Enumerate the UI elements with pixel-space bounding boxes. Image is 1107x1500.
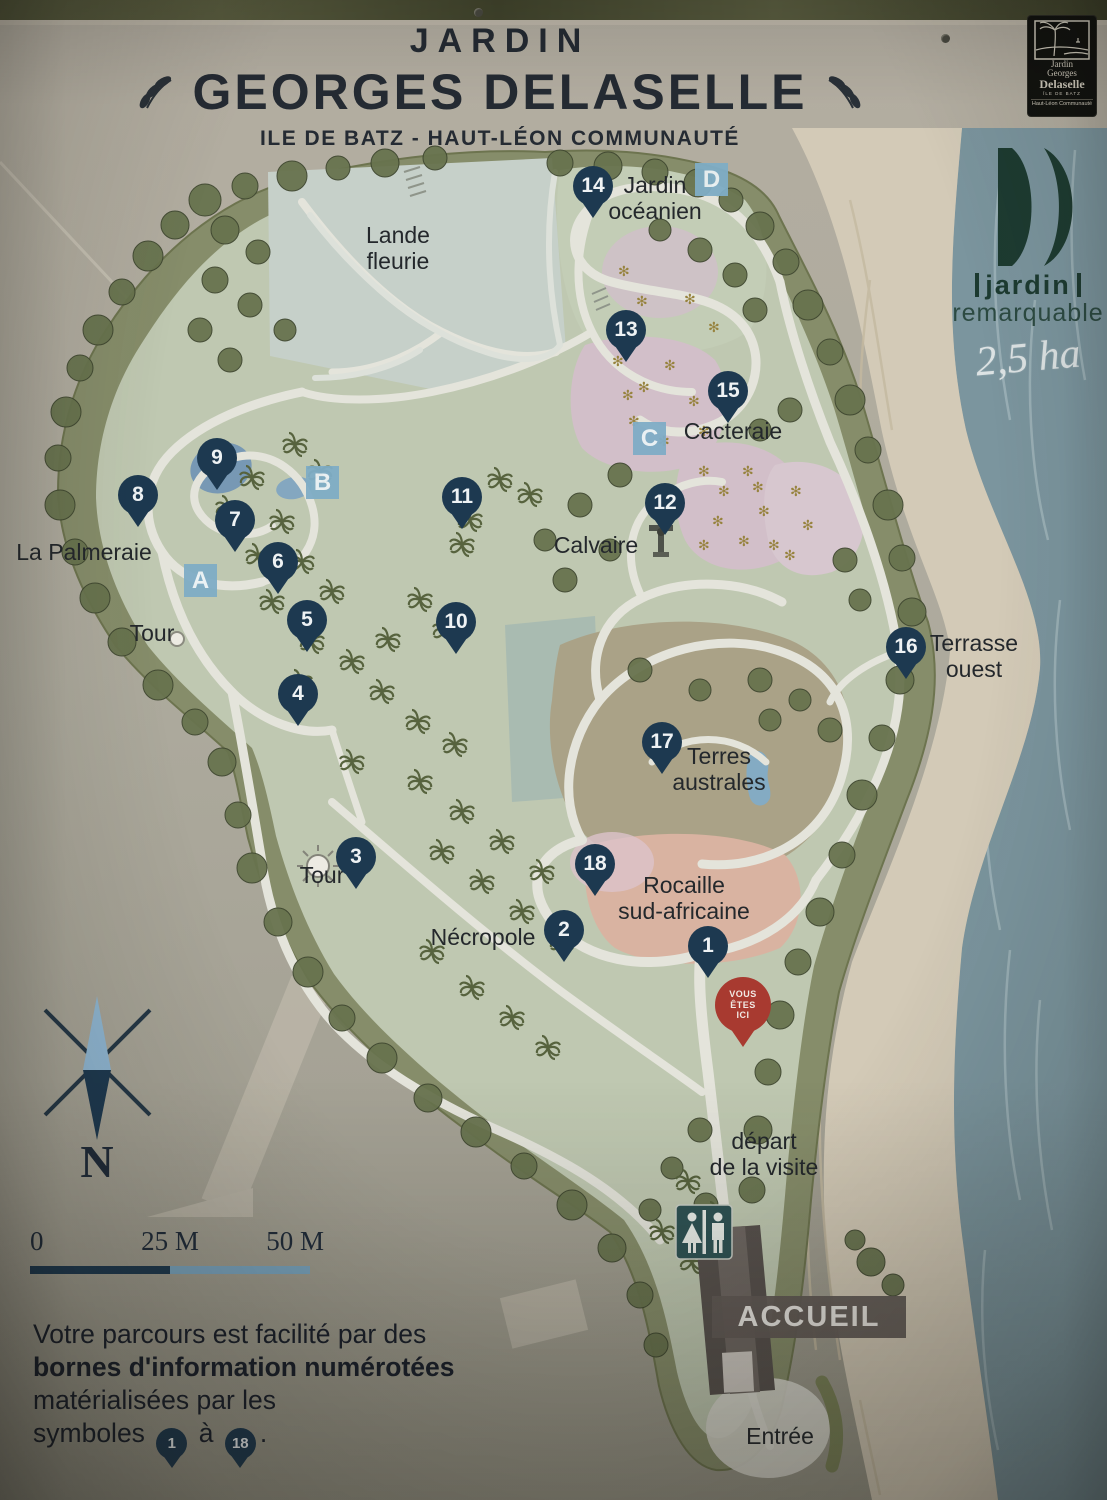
svg-text:✻: ✻ [768,537,780,553]
subtitle: ILE DE BATZ - HAUT-LÉON COMMUNAUTÉ [0,127,1000,151]
toilets-icon [676,1205,732,1259]
scale-bar-dark [30,1266,170,1274]
leaf-ornament-left [131,72,175,112]
map-marker-13: 13 [606,310,646,350]
leaf-ornament-right [825,72,869,112]
scale-start: 0 [30,1226,44,1257]
compass-rose [45,996,150,1140]
you-are-here-text: VOUS [729,989,757,1000]
badge-leaf-shapes [968,148,1088,266]
map-marker-2: 2 [544,910,584,950]
wooden-frame-top [0,0,1107,20]
map-marker-4: 4 [278,674,318,714]
svg-text:✻: ✻ [622,387,634,403]
svg-text:✻: ✻ [752,479,764,495]
logo-text-5: Haut-Léon Communauté [1031,99,1093,108]
map-marker-11: 11 [442,477,482,517]
legend-pin-18: 18 [225,1428,256,1459]
legend-line4-prefix: symboles [33,1418,145,1448]
map-label-la-palmeraie: La Palmeraie [16,539,152,565]
compass-north-label: N [80,1135,113,1188]
svg-text:✻: ✻ [698,463,710,479]
title-line2: GEORGES DELASELLE [193,63,808,121]
logo-palm-drawing [1034,20,1090,60]
logo-text-3: Delaselle [1028,78,1096,90]
map-marker-9: 9 [197,438,237,478]
sign-header: JARDIN GEORGES DELASELLE ILE [0,22,1000,151]
map-label-lande-fleurie: Lande fleurie [366,222,430,274]
map-label-terrasse-ouest: Terrasse ouest [930,630,1018,682]
svg-text:✻: ✻ [708,319,720,335]
legend-text: Votre parcours est facilité par des born… [33,1318,513,1459]
map-label-rocaille: Rocaille sud-africaine [618,872,750,924]
legend-line4-end: . [260,1418,267,1448]
letter-station-D: D [695,163,728,196]
svg-text:✻: ✻ [664,357,676,373]
map-marker-16: 16 [886,627,926,667]
svg-text:✻: ✻ [742,463,754,479]
map-marker-1: 1 [688,926,728,966]
scale-end: 50 M [266,1226,324,1257]
legend-line1: Votre parcours est facilité par des [33,1318,513,1351]
map-label-necropole: Nécropole [431,924,536,950]
legend-line4-conj: à [199,1418,214,1448]
svg-text:✻: ✻ [698,537,710,553]
garden-logo: Jardin Georges Delaselle ÎLE DE BATZ Hau… [1028,16,1096,116]
svg-text:✻: ✻ [688,393,700,409]
map-label-calvaire: Calvaire [554,532,638,558]
map-marker-12: 12 [645,483,685,523]
screw [474,8,483,17]
letter-station-B: B [306,466,339,499]
map-label-tour-nord: Tour [130,620,175,646]
map-marker-8: 8 [118,475,158,515]
title-line1: JARDIN [0,22,1000,61]
you-are-here-text: ICI [736,1010,749,1021]
map-illustration: ✻✻✻✻ ✻✻✻✻ ✻✻✻✻ ✻✻✻✻ ✻✻✻✻ ✻✻✻✻ [0,0,1107,1500]
svg-text:✻: ✻ [802,517,814,533]
accueil-sign: ACCUEIL [712,1296,906,1338]
badge-word-remarquable: remarquable [952,299,1104,328]
map-marker-5: 5 [287,600,327,640]
map-marker-6: 6 [258,542,298,582]
accueil-label: ACCUEIL [738,1301,881,1334]
map-marker-17: 17 [642,722,682,762]
svg-text:✻: ✻ [636,293,648,309]
garden-area [58,151,935,1479]
map-marker-3: 3 [336,837,376,877]
you-are-here-pin: VOUS ÊTES ICI [715,977,771,1033]
svg-text:✻: ✻ [790,483,802,499]
map-marker-15: 15 [708,371,748,411]
badge-area-note: 2,5 ha [950,327,1106,388]
logo-text-4: ÎLE DE BATZ [1028,90,1096,97]
map-marker-10: 10 [436,602,476,642]
jardin-remarquable-badge: jardin remarquable 2,5 ha [952,148,1104,382]
svg-text:✻: ✻ [712,513,724,529]
map-marker-18: 18 [575,844,615,884]
legend-pin-1: 1 [156,1428,187,1459]
svg-text:✻: ✻ [618,263,630,279]
map-label-entree: Entrée [746,1423,814,1449]
svg-text:✻: ✻ [738,533,750,549]
scale-bar-light [170,1266,310,1274]
map-label-depart-visite: départ de la visite [710,1128,819,1180]
svg-text:✻: ✻ [758,503,770,519]
scale-bar: 0 25 M 50 M [30,1226,310,1274]
legend-line4: symboles 1 à 18. [33,1417,513,1459]
svg-text:✻: ✻ [718,483,730,499]
badge-word-jardin: jardin [975,273,1081,297]
map-marker-7: 7 [215,500,255,540]
svg-text:✻: ✻ [684,291,696,307]
map-label-terres-australes: Terres australes [672,743,765,795]
map-marker-14: 14 [573,166,613,206]
scale-mid: 25 M [141,1226,199,1257]
letter-station-C: C [633,422,666,455]
you-are-here-text: ÊTES [730,1000,756,1011]
svg-text:✻: ✻ [638,379,650,395]
legend-line3: matérialisées par les [33,1384,513,1417]
letter-station-A: A [184,564,217,597]
garden-map-sign: ✻✻✻✻ ✻✻✻✻ ✻✻✻✻ ✻✻✻✻ ✻✻✻✻ ✻✻✻✻ [0,0,1107,1500]
legend-line2: bornes d'information numérotées [33,1352,455,1382]
svg-text:✻: ✻ [784,547,796,563]
map-label-jardin-oceanien: Jardin océanien [608,172,701,224]
